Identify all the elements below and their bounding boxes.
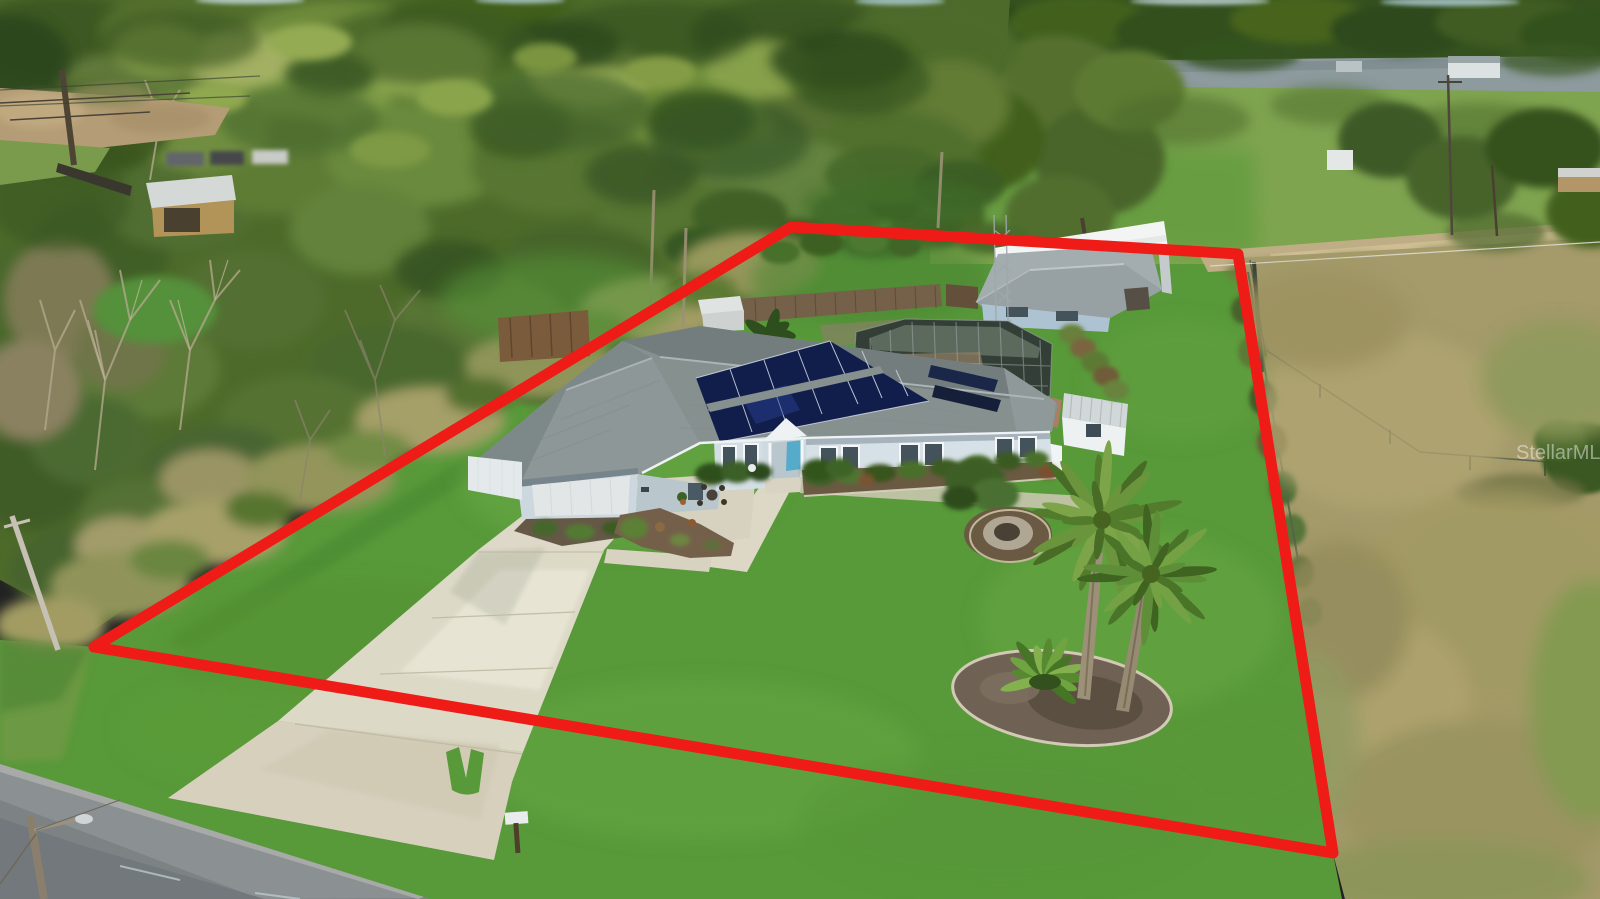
- svg-text:StellarMLS: StellarMLS: [1516, 442, 1600, 464]
